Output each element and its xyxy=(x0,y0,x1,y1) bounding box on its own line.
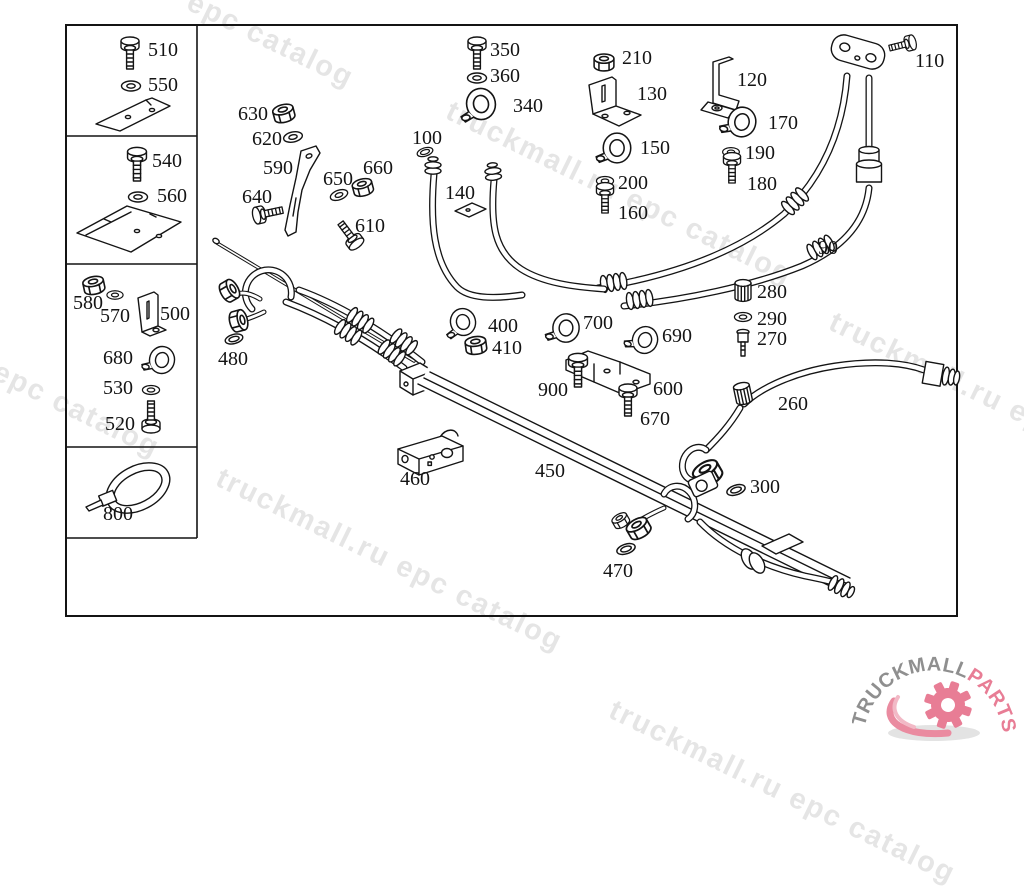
part-660-nut-icon xyxy=(351,177,375,198)
part-210-nut-icon xyxy=(594,54,614,71)
part-570-washer-icon xyxy=(107,291,123,300)
part-label-140: 140 xyxy=(445,182,475,204)
part-540-bolt-icon xyxy=(128,147,147,181)
part-300-seal-ring-icon xyxy=(726,482,747,497)
part-label-600: 600 xyxy=(653,378,683,400)
part-410-nut-icon xyxy=(464,335,487,355)
part-260-pipe-icon xyxy=(682,361,961,497)
part-label-570: 570 xyxy=(100,305,130,327)
part-label-620: 620 xyxy=(252,128,282,150)
part-label-150: 150 xyxy=(640,137,670,159)
part-label-640: 640 xyxy=(242,186,272,208)
part-label-170: 170 xyxy=(768,112,798,134)
part-680-clamp-icon xyxy=(141,343,177,375)
part-470-seal-ring-icon xyxy=(616,541,637,556)
part-label-350: 350 xyxy=(490,39,520,61)
u-pipes xyxy=(425,157,604,298)
part-label-210: 210 xyxy=(622,47,652,69)
part-label-670: 670 xyxy=(640,408,670,430)
part-label-90: 90 xyxy=(818,237,838,259)
part-400-clamp-icon xyxy=(441,306,478,340)
part-label-110: 110 xyxy=(915,50,944,72)
part-670-bolt-icon xyxy=(619,384,637,416)
flange-icon xyxy=(828,32,887,72)
part-label-180: 180 xyxy=(747,173,777,195)
part-label-100: 100 xyxy=(412,127,442,149)
part-label-450: 450 xyxy=(535,460,565,482)
part-530-washer-icon xyxy=(142,386,159,395)
part-290-washer-icon xyxy=(734,313,751,322)
part-340-clamp-icon xyxy=(457,86,498,123)
part-520-bolt-icon xyxy=(142,401,160,433)
part-label-520: 520 xyxy=(105,413,135,435)
part-label-610: 610 xyxy=(355,215,385,237)
part-label-280: 280 xyxy=(757,281,787,303)
part-label-400: 400 xyxy=(488,315,518,337)
part-label-190: 190 xyxy=(745,142,775,164)
part-label-120: 120 xyxy=(737,69,767,91)
part-280-cap-icon xyxy=(735,280,751,302)
part-510-bolt-icon xyxy=(121,37,139,69)
part-number-labels: 510 550 540 560 580 570 500 680 530 520 … xyxy=(73,39,944,582)
part-550-strip-plate-icon xyxy=(96,98,170,131)
part-label-130: 130 xyxy=(637,83,667,105)
part-label-900: 900 xyxy=(538,379,568,401)
part-700-clamp-icon xyxy=(545,312,580,343)
brand-logo: TRUCKMALLPARTS xyxy=(852,645,1017,748)
part-label-300: 300 xyxy=(750,476,780,498)
part-label-460: 460 xyxy=(400,468,430,490)
part-360-washer-icon xyxy=(468,73,487,83)
part-630-nut-icon xyxy=(272,102,297,124)
part-label-500: 500 xyxy=(160,303,190,325)
part-270-valve-icon xyxy=(737,329,749,356)
part-label-690: 690 xyxy=(662,325,692,347)
part-label-410: 410 xyxy=(492,337,522,359)
part-label-540: 540 xyxy=(152,150,182,172)
part-label-360: 360 xyxy=(490,65,520,87)
part-150-clamp-icon xyxy=(596,133,631,163)
part-label-510: 510 xyxy=(148,39,178,61)
page: { "page": {"background": "#ffffff", "lin… xyxy=(0,0,1024,750)
part-label-590: 590 xyxy=(263,157,293,179)
part-160-bolt-icon xyxy=(596,183,613,213)
part-690-clamp-icon xyxy=(623,321,662,357)
parts-diagram: 510 550 540 560 580 570 500 680 530 520 … xyxy=(0,0,1024,750)
part-label-470: 470 xyxy=(603,560,633,582)
part-label-560: 560 xyxy=(157,185,187,207)
part-560-washer-icon xyxy=(129,192,148,202)
part-label-270: 270 xyxy=(757,328,787,350)
part-label-260: 260 xyxy=(778,393,808,415)
part-label-660: 660 xyxy=(363,157,393,179)
part-120-bracket-icon xyxy=(701,57,739,118)
part-550-washer-icon xyxy=(122,81,141,91)
part-label-200: 200 xyxy=(618,172,648,194)
part-label-680: 680 xyxy=(103,347,133,369)
part-130-bracket-icon xyxy=(589,77,641,126)
part-560-cover-plate-icon xyxy=(77,206,181,252)
part-110-bolt-icon xyxy=(888,34,918,55)
part-label-550: 550 xyxy=(148,74,178,96)
part-480-seal-ring-icon xyxy=(224,332,244,346)
part-label-580: 580 xyxy=(73,292,103,314)
part-label-480: 480 xyxy=(218,348,248,370)
part-label-530: 530 xyxy=(103,377,133,399)
part-label-290: 290 xyxy=(757,308,787,330)
part-label-700: 700 xyxy=(583,312,613,334)
svg-text:TRUCKMALLPARTS: TRUCKMALLPARTS xyxy=(852,654,1017,735)
part-620-washer-icon xyxy=(283,130,304,144)
part-label-630: 630 xyxy=(238,103,268,125)
part-180-bolt-icon xyxy=(723,153,740,183)
part-350-bolt-icon xyxy=(468,37,486,69)
logo-suffix-text: PARTS xyxy=(963,664,1017,734)
part-label-160: 160 xyxy=(618,202,648,224)
part-label-340: 340 xyxy=(513,95,543,117)
part-label-800: 800 xyxy=(103,503,133,525)
part-140-tag-icon xyxy=(455,203,486,217)
part-label-650: 650 xyxy=(323,168,353,190)
